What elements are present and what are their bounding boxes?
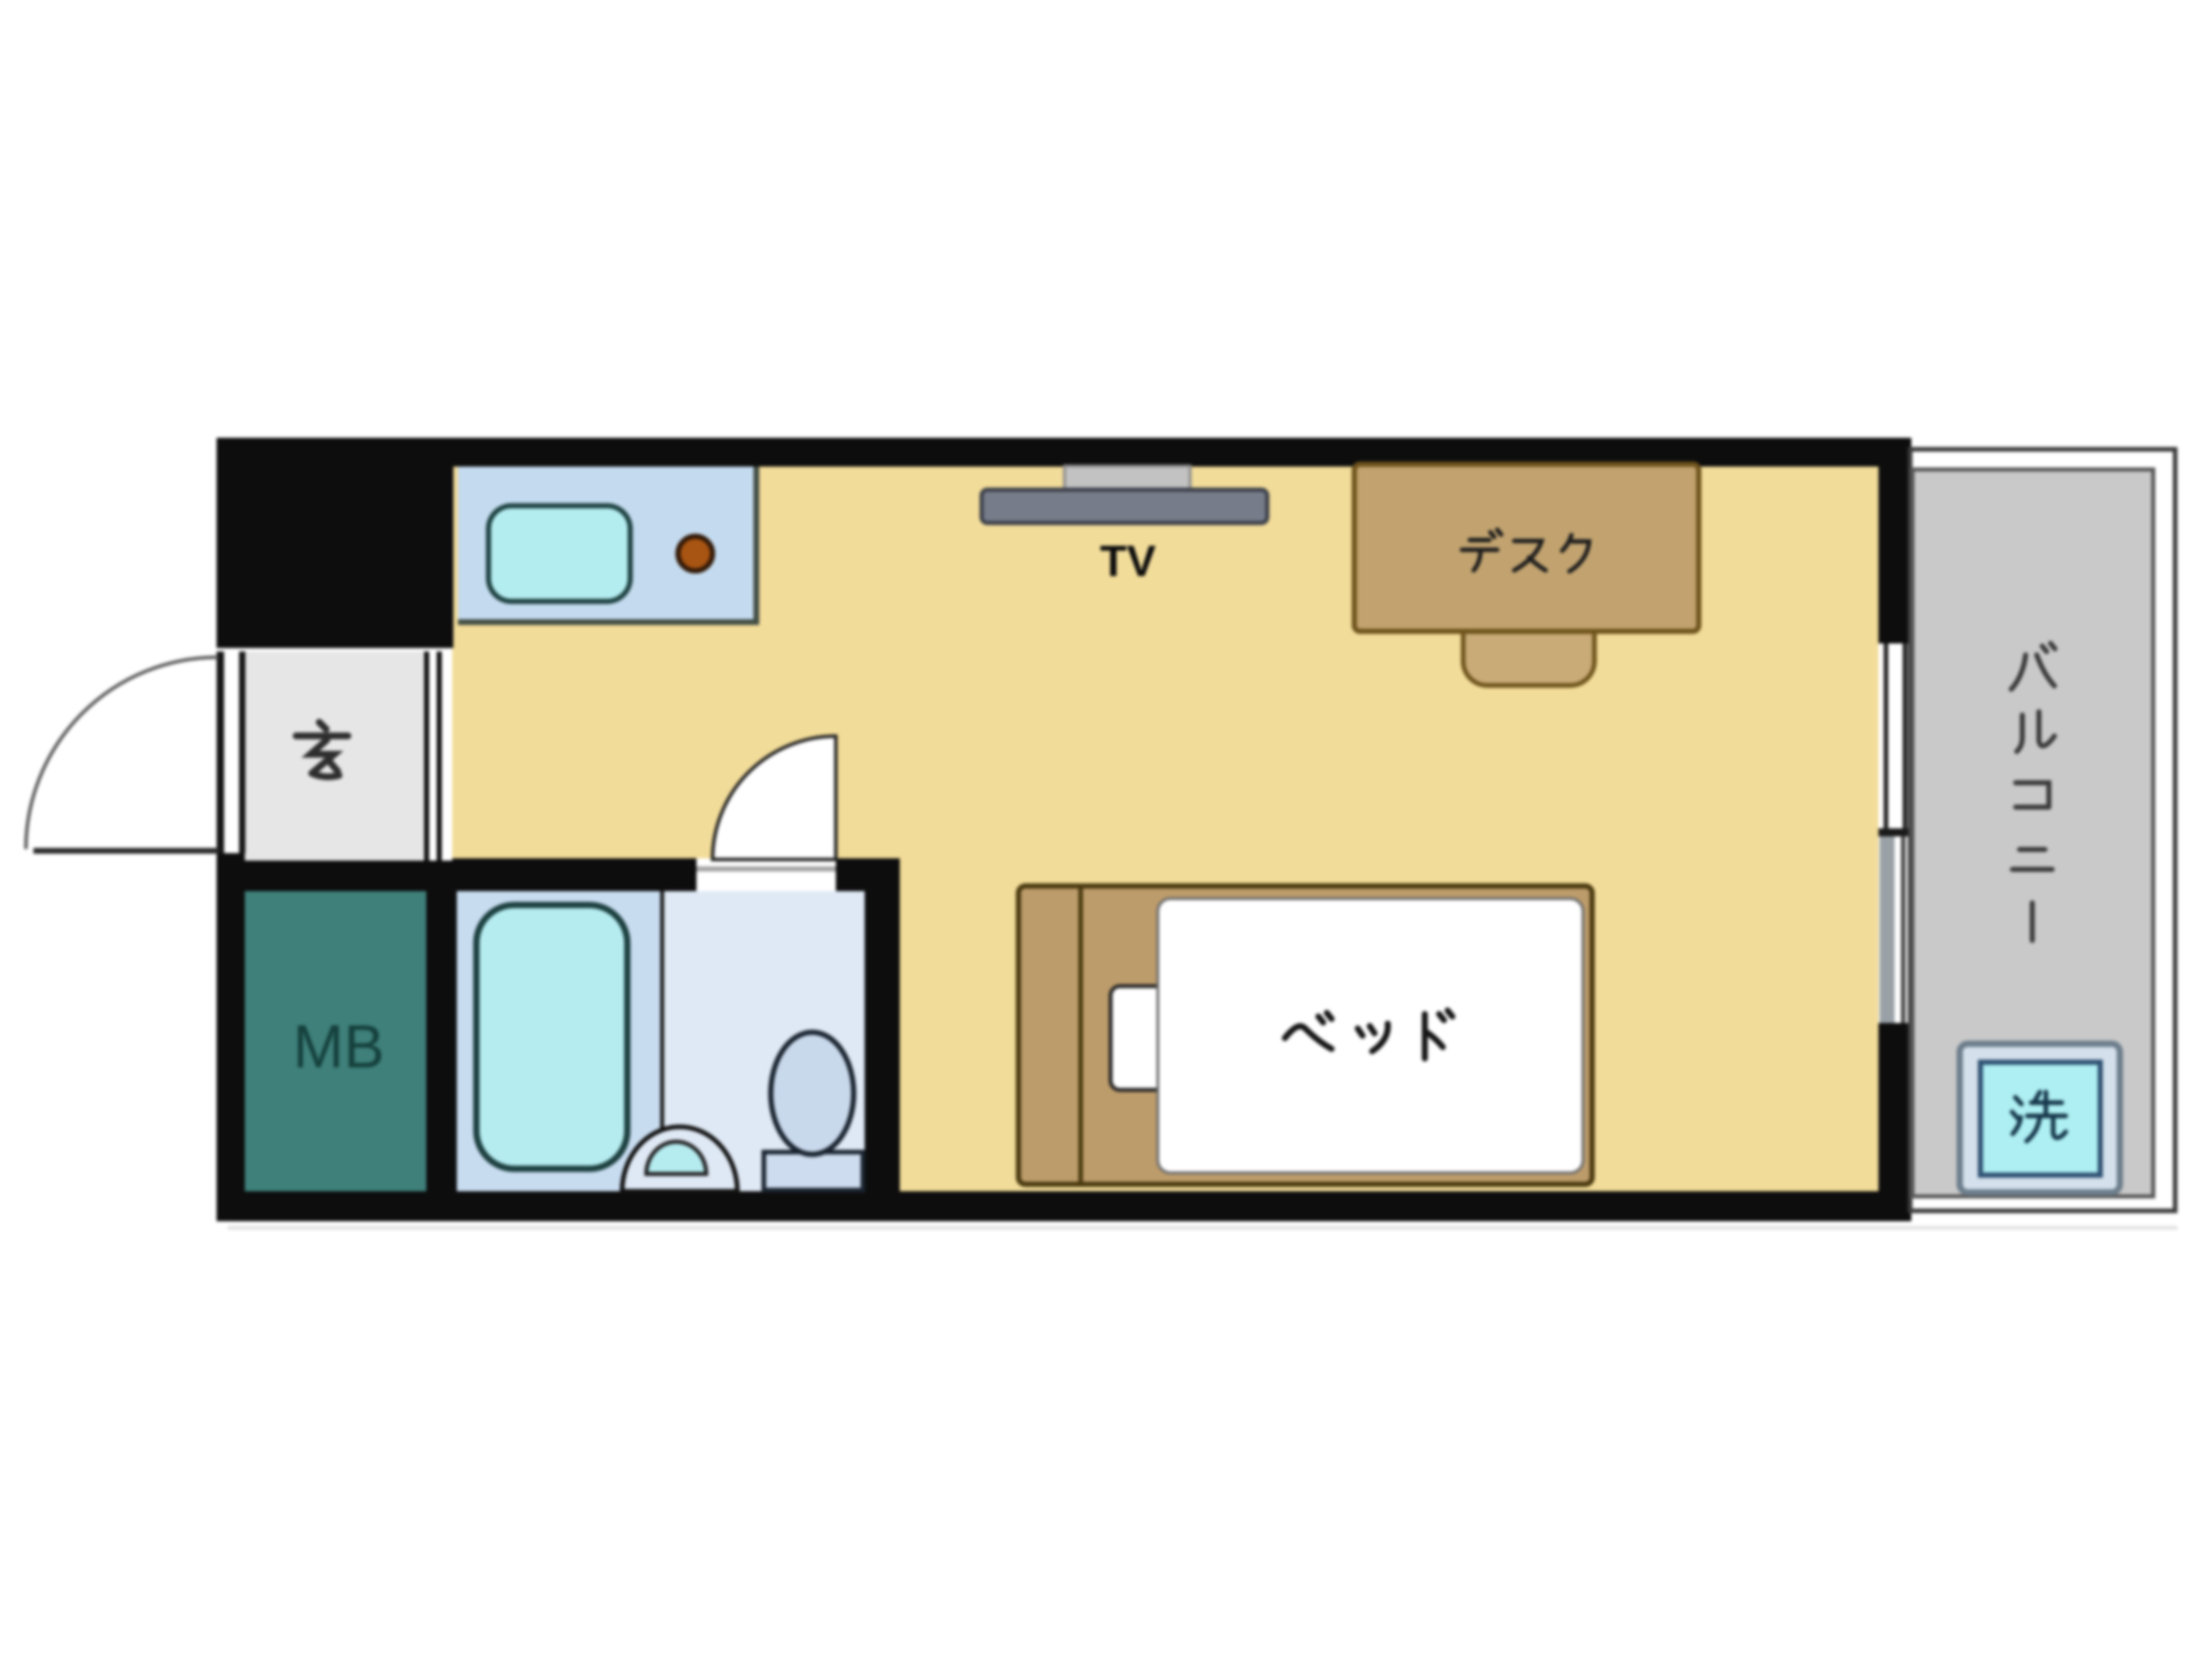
svg-text:TV: TV — [1100, 537, 1156, 586]
svg-text:MB: MB — [293, 1013, 385, 1081]
